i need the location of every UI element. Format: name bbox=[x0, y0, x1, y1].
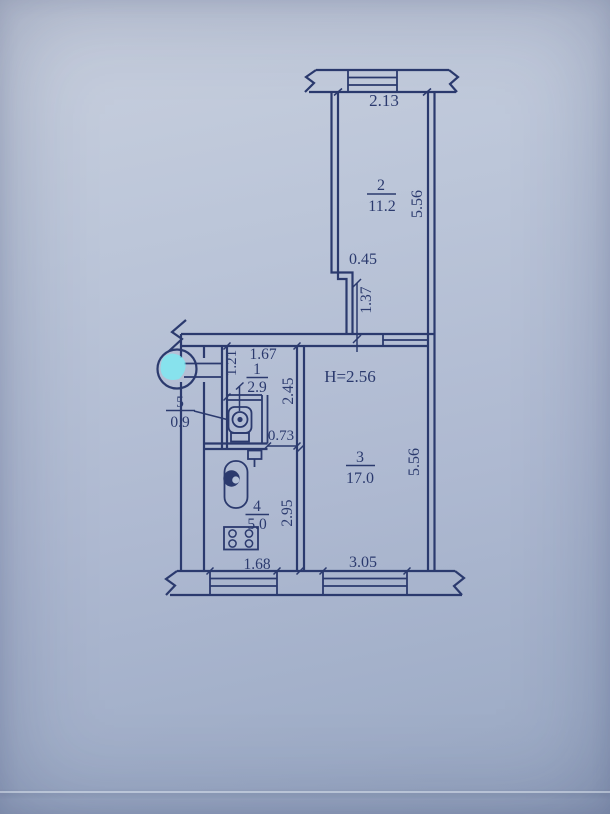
entrance-opening bbox=[184, 364, 222, 378]
dim-room3-window-width: 3.05 bbox=[349, 554, 377, 571]
window-symbol bbox=[323, 571, 407, 595]
sink-symbol bbox=[223, 461, 247, 508]
kitchen-door-symbol bbox=[248, 443, 301, 468]
room3-area-label: 17.0 bbox=[346, 470, 374, 487]
dim-room2-wall-jog: 0.45 bbox=[349, 251, 377, 268]
room5-number-label: 5 bbox=[176, 394, 184, 411]
room2-walls bbox=[332, 92, 435, 571]
dim-hall-depth: 2.45 bbox=[280, 377, 297, 404]
room1-number-label: 1 bbox=[253, 361, 261, 378]
ceiling-height-note: H=2.56 bbox=[324, 367, 376, 386]
window-symbol bbox=[348, 70, 397, 92]
middle-cross-wall bbox=[181, 334, 435, 346]
room4-area-label: 5.0 bbox=[247, 516, 267, 533]
dim-kitchen-window-width: 1.68 bbox=[243, 556, 270, 573]
dim-room2-pier: 1.37 bbox=[358, 286, 375, 313]
dim-kitchen-door-width: 0.73 bbox=[268, 428, 294, 444]
bottom-exterior-wall bbox=[166, 568, 464, 596]
room3-number-label: 3 bbox=[356, 449, 364, 466]
room2-number-label: 2 bbox=[377, 177, 385, 194]
dim-room3-depth: 5.56 bbox=[406, 448, 423, 476]
floor-plan-drawing: 2.13 2 11.2 5.56 0.45 1.37 1.67 1.21 1 2… bbox=[0, 0, 610, 814]
dimension-lines bbox=[194, 279, 361, 575]
wall-break-icon bbox=[166, 571, 177, 595]
room5-area-label: 0.9 bbox=[170, 414, 190, 431]
dim-kitchen-depth: 2.95 bbox=[279, 499, 296, 526]
entrance-highlight bbox=[158, 350, 197, 389]
wall-break-icon bbox=[454, 571, 464, 595]
dim-room2-depth: 5.56 bbox=[409, 190, 426, 218]
room1-area-label: 2.9 bbox=[247, 379, 267, 396]
dim-room2-window-width: 2.13 bbox=[369, 91, 399, 110]
window-symbol bbox=[210, 571, 277, 595]
wc-label-leader bbox=[194, 411, 229, 420]
wall-break-icon bbox=[305, 70, 316, 92]
floor-plan-photo: 2.13 2 11.2 5.56 0.45 1.37 1.67 1.21 1 2… bbox=[0, 0, 610, 814]
room4-number-label: 4 bbox=[253, 498, 261, 515]
dim-hall-entry-side: 1.21 bbox=[224, 350, 240, 376]
room2-area-label: 11.2 bbox=[368, 198, 395, 215]
wall-break-icon bbox=[449, 70, 458, 92]
room-label-lines bbox=[166, 194, 396, 515]
